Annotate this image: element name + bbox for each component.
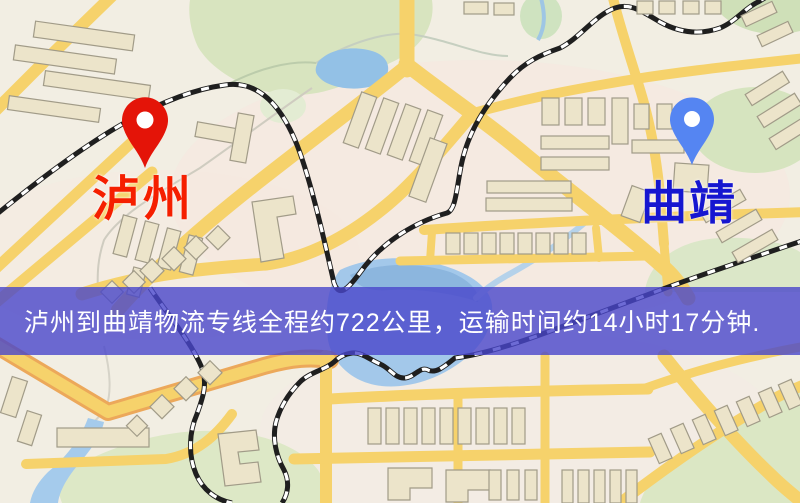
route-info-banner: 泸州到曲靖物流专线全程约722公里，运输时间约14小时17分钟.	[0, 287, 800, 355]
origin-city-label: 泸州	[92, 176, 194, 224]
route-info-text: 泸州到曲靖物流专线全程约722公里，运输时间约14小时17分钟.	[0, 303, 760, 339]
logistics-route-map-screenshot: 泸州 曲靖 泸州到曲靖物流专线全程约722公里，运输时间约14小时17分钟.	[0, 0, 800, 503]
map-canvas[interactable]	[0, 0, 800, 503]
destination-city-label: 曲靖	[641, 180, 737, 226]
